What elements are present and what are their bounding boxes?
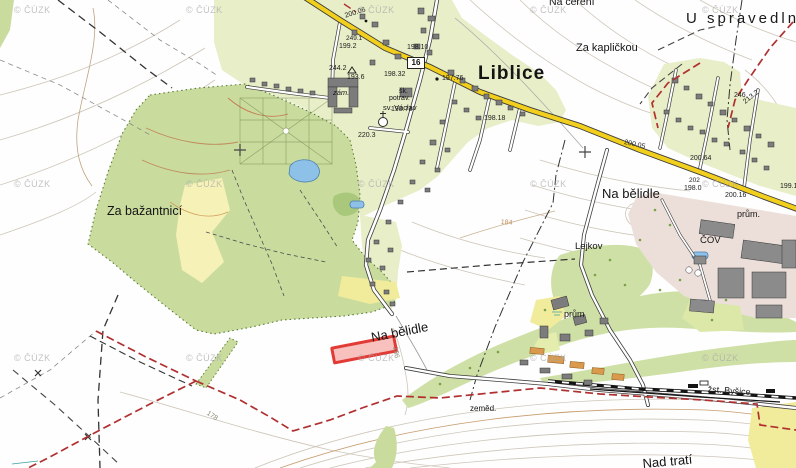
cuzk-watermark: © ČÚZK (14, 354, 51, 363)
place-label-nad-trati: Nad tratí (642, 453, 693, 468)
yellow-field-2 (748, 402, 796, 468)
boundary-cross-marks (35, 370, 91, 440)
cuzk-watermark: © ČÚZK (702, 6, 739, 15)
elevation-label: 200.16 (725, 192, 746, 199)
elevation-label: 198.32 (384, 71, 405, 78)
abbr-label-potraviny: potrav. (389, 95, 410, 102)
cuzk-watermark: © ČÚZK (530, 180, 567, 189)
elevation-label: 199.1 (780, 183, 796, 190)
place-label-liblice: Liblice (478, 64, 545, 83)
cuzk-watermark: © ČÚZK (358, 354, 395, 363)
place-label-prum-lower: prům (564, 310, 585, 319)
place-label-za-bazantnici: Za bažantnicí (107, 205, 182, 218)
elevation-label: 199.2 (339, 43, 357, 50)
cuzk-watermark: © ČÚZK (14, 6, 51, 15)
cuzk-watermark: © ČÚZK (186, 354, 223, 363)
cuzk-watermark: © ČÚZK (530, 6, 567, 15)
stream-green (370, 426, 397, 468)
cuzk-watermark: © ČÚZK (530, 354, 567, 363)
abbr-label-skola: šk. (399, 88, 408, 95)
contour-number: 184 (501, 219, 513, 227)
cuzk-watermark: © ČÚZK (358, 6, 395, 15)
elevation-label: 202 (689, 178, 700, 185)
abbr-label-zamek: zám. (333, 89, 349, 97)
station-platform (766, 389, 775, 393)
elevation-label: 244.2 (329, 65, 347, 72)
pond (350, 201, 364, 208)
place-label-zemed: zeměd. (470, 405, 496, 413)
elevation-label: 198.18 (484, 115, 505, 122)
cuzk-watermark: © ČÚZK (14, 180, 51, 189)
cov-tank (695, 270, 701, 276)
elevation-label: 198.73 (391, 106, 412, 113)
elevation-label: 249.1 (346, 36, 362, 43)
cov-tank (694, 256, 706, 264)
elevation-label: 220.3 (358, 132, 376, 139)
castle-pond (289, 160, 319, 182)
stream-line (12, 461, 38, 464)
spot-height-dot (365, 20, 368, 23)
place-label-za-kaplickou: Za kapličkou (576, 43, 638, 54)
map-canvas[interactable]: Liblice Za bažantnicí Na bělidle Na běli… (0, 0, 796, 468)
tree-strip (196, 338, 238, 388)
elevation-label: 198.10 (407, 44, 428, 51)
elevation-label: 197.76 (442, 75, 463, 82)
road-number-badge: 16 (407, 57, 425, 69)
green-sliver (0, 0, 14, 48)
cuzk-watermark: © ČÚZK (186, 6, 223, 15)
place-label-lejkov: Lejkov (575, 242, 602, 252)
ne-gardens (648, 58, 796, 196)
station-platform (688, 384, 698, 388)
elevation-label: 193.6 (347, 74, 365, 81)
place-label-cov: ČOV (700, 236, 721, 246)
cuzk-watermark: © ČÚZK (702, 180, 739, 189)
place-label-prum-upper: prům. (737, 210, 760, 219)
cuzk-watermark: © ČÚZK (358, 180, 395, 189)
cov-tank (686, 267, 692, 273)
place-label-na-belidle-upper: Na bělidle (602, 187, 660, 200)
elevation-label: 200.64 (690, 155, 711, 162)
station-building (700, 381, 708, 385)
elevation-label: 198.0 (684, 185, 702, 192)
spot-height-dot (435, 77, 438, 80)
cuzk-watermark: © ČÚZK (702, 354, 739, 363)
chapel-cross (579, 146, 591, 158)
cuzk-watermark: © ČÚZK (186, 180, 223, 189)
